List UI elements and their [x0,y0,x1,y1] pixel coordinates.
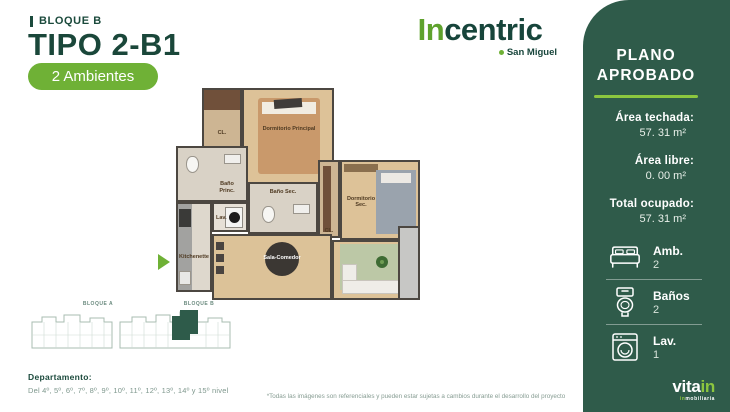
vitain-part-white: vita [672,377,700,396]
feature-divider [606,279,702,280]
stove-fixture [179,209,191,227]
department-info: Departamento: Del 4º, 5º, 6º, 7º, 8º, 9º… [28,372,228,395]
washer-drum [229,212,240,223]
flyer-canvas: BLOQUE B TIPO 2-B1 2 Ambientes Incentric… [0,0,730,412]
bed-icon [607,245,643,270]
feature-text: Baños 2 [653,289,690,316]
shelf-2 [216,254,224,262]
keyplan: BLOQUE A BLOQUE B [28,298,258,360]
block-label: BLOQUE B [30,16,102,27]
vitain-tagline-white: mobiliaria [685,396,715,402]
washer-icon [607,332,643,362]
feature-value: 1 [653,349,676,361]
feature-label: Amb. [653,244,683,258]
feature-text: Lav. 1 [653,334,676,361]
shelf-1 [216,242,224,250]
location-dot-icon [499,50,504,55]
room-label-bano-sec: Baño Sec. [250,189,316,195]
feature-divider [606,324,702,325]
plano-line1: PLANO [583,46,709,66]
room-label-bano-princ: Baño Princ. [212,181,242,194]
plano-line2: APROBADO [583,66,709,86]
brand-location-label: San Miguel [507,47,557,58]
stat-area-libre: Área libre: 0. 00 m² [583,155,730,182]
stat-value: 57. 31 m² [583,213,694,225]
room-closet-principal: CL. [202,88,242,148]
page-title: TIPO 2-B1 [28,27,181,63]
room-label-closet1: CL. [204,130,240,136]
plant-icon [376,256,388,268]
feature-row-lavanderia: Lav. 1 [583,331,730,363]
room-sala-comedor: Sala-Comedor [212,234,332,300]
room-lavanderia: Lav. [212,202,248,232]
disclaimer-text: *Todas las imágenes son referenciales y … [246,393,586,400]
room-label-dorm-principal: Dormitorio Principal [261,126,317,132]
area-stats: Área techada: 57. 31 m² Área libre: 0. 0… [583,112,730,225]
shelf-3 [216,266,224,274]
floorplan: CL. Dormitorio Principal Baño Princ. Lav… [172,86,425,304]
closet-clothes [204,90,240,110]
sink-fixture [224,154,241,164]
feature-value: 2 [653,259,683,271]
bed-secundario [376,170,416,234]
brand-location: San Miguel [397,47,563,58]
room-label-sala: Sala-Comedor [252,255,312,261]
room-kitchenette: Kitchenette [176,202,212,292]
department-label: Departamento: [28,372,228,382]
sink-fixture-2 [293,204,310,214]
stat-value: 0. 00 m² [583,170,694,182]
info-sidebar: PLANO APROBADO Área techada: 57. 31 m² Á… [583,0,730,412]
feature-label: Lav. [653,334,676,348]
brand-wordmark-green: In [418,12,445,47]
features-list: Amb. 2 Baños 2 [583,241,730,363]
plano-aprobado-title: PLANO APROBADO [583,46,709,86]
room-bano-secundario: Baño Sec. [248,182,318,234]
room-label-lav: Lav. [216,215,227,221]
vitain-logo: vitain inmobiliaria [672,378,715,402]
brand-logo: Incentric San Miguel [397,14,563,58]
stat-total-ocupado: Total ocupado: 57. 31 m² [583,198,730,225]
toilet-fixture-2 [262,206,275,223]
entrance-arrow-icon [158,254,170,270]
room-label-kitchenette: Kitchenette [178,254,210,260]
sofa [342,280,406,294]
room-bano-principal: Baño Princ. [176,146,248,202]
stat-value: 57. 31 m² [583,127,694,139]
terrace-strip [398,226,420,300]
ambientes-badge-label: 2 Ambientes [52,68,135,85]
keyplan-drawing [28,298,258,360]
feature-row-banos: Baños 2 [583,286,730,318]
closet-rail [323,166,331,232]
fridge-fixture [179,271,191,285]
title-underline [594,95,698,98]
feature-text: Amb. 2 [653,244,683,271]
feature-label: Baños [653,289,690,303]
department-levels: Del 4º, 5º, 6º, 7º, 8º, 9º, 10º, 11º, 12… [28,386,228,395]
room-closet-secundario: CL. [318,160,340,238]
stat-area-techada: Área techada: 57. 31 m² [583,112,730,139]
brand-wordmark-dark: centric [444,12,542,47]
toilet-icon [607,286,643,318]
bed-principal: Dormitorio Principal [258,98,320,174]
stat-label: Total ocupado: [583,198,694,210]
ambientes-badge: 2 Ambientes [28,63,158,90]
bed-pillow [274,98,303,109]
bed-pillow-2 [381,173,411,183]
vitain-tagline: inmobiliaria [672,397,715,402]
vitain-wordmark: vitain [672,378,715,395]
vitain-part-green: in [700,377,715,396]
stat-label: Área techada: [583,112,694,124]
brand-wordmark: Incentric [397,14,563,45]
toilet-fixture [186,156,199,173]
feature-row-ambientes: Amb. 2 [583,241,730,273]
feature-value: 2 [653,304,690,316]
desk-fixture [344,164,378,172]
washing-machine-fixture [225,207,243,228]
room-label-dorm-sec: Dormitorio Sec. [344,196,378,209]
stat-label: Área libre: [583,155,694,167]
